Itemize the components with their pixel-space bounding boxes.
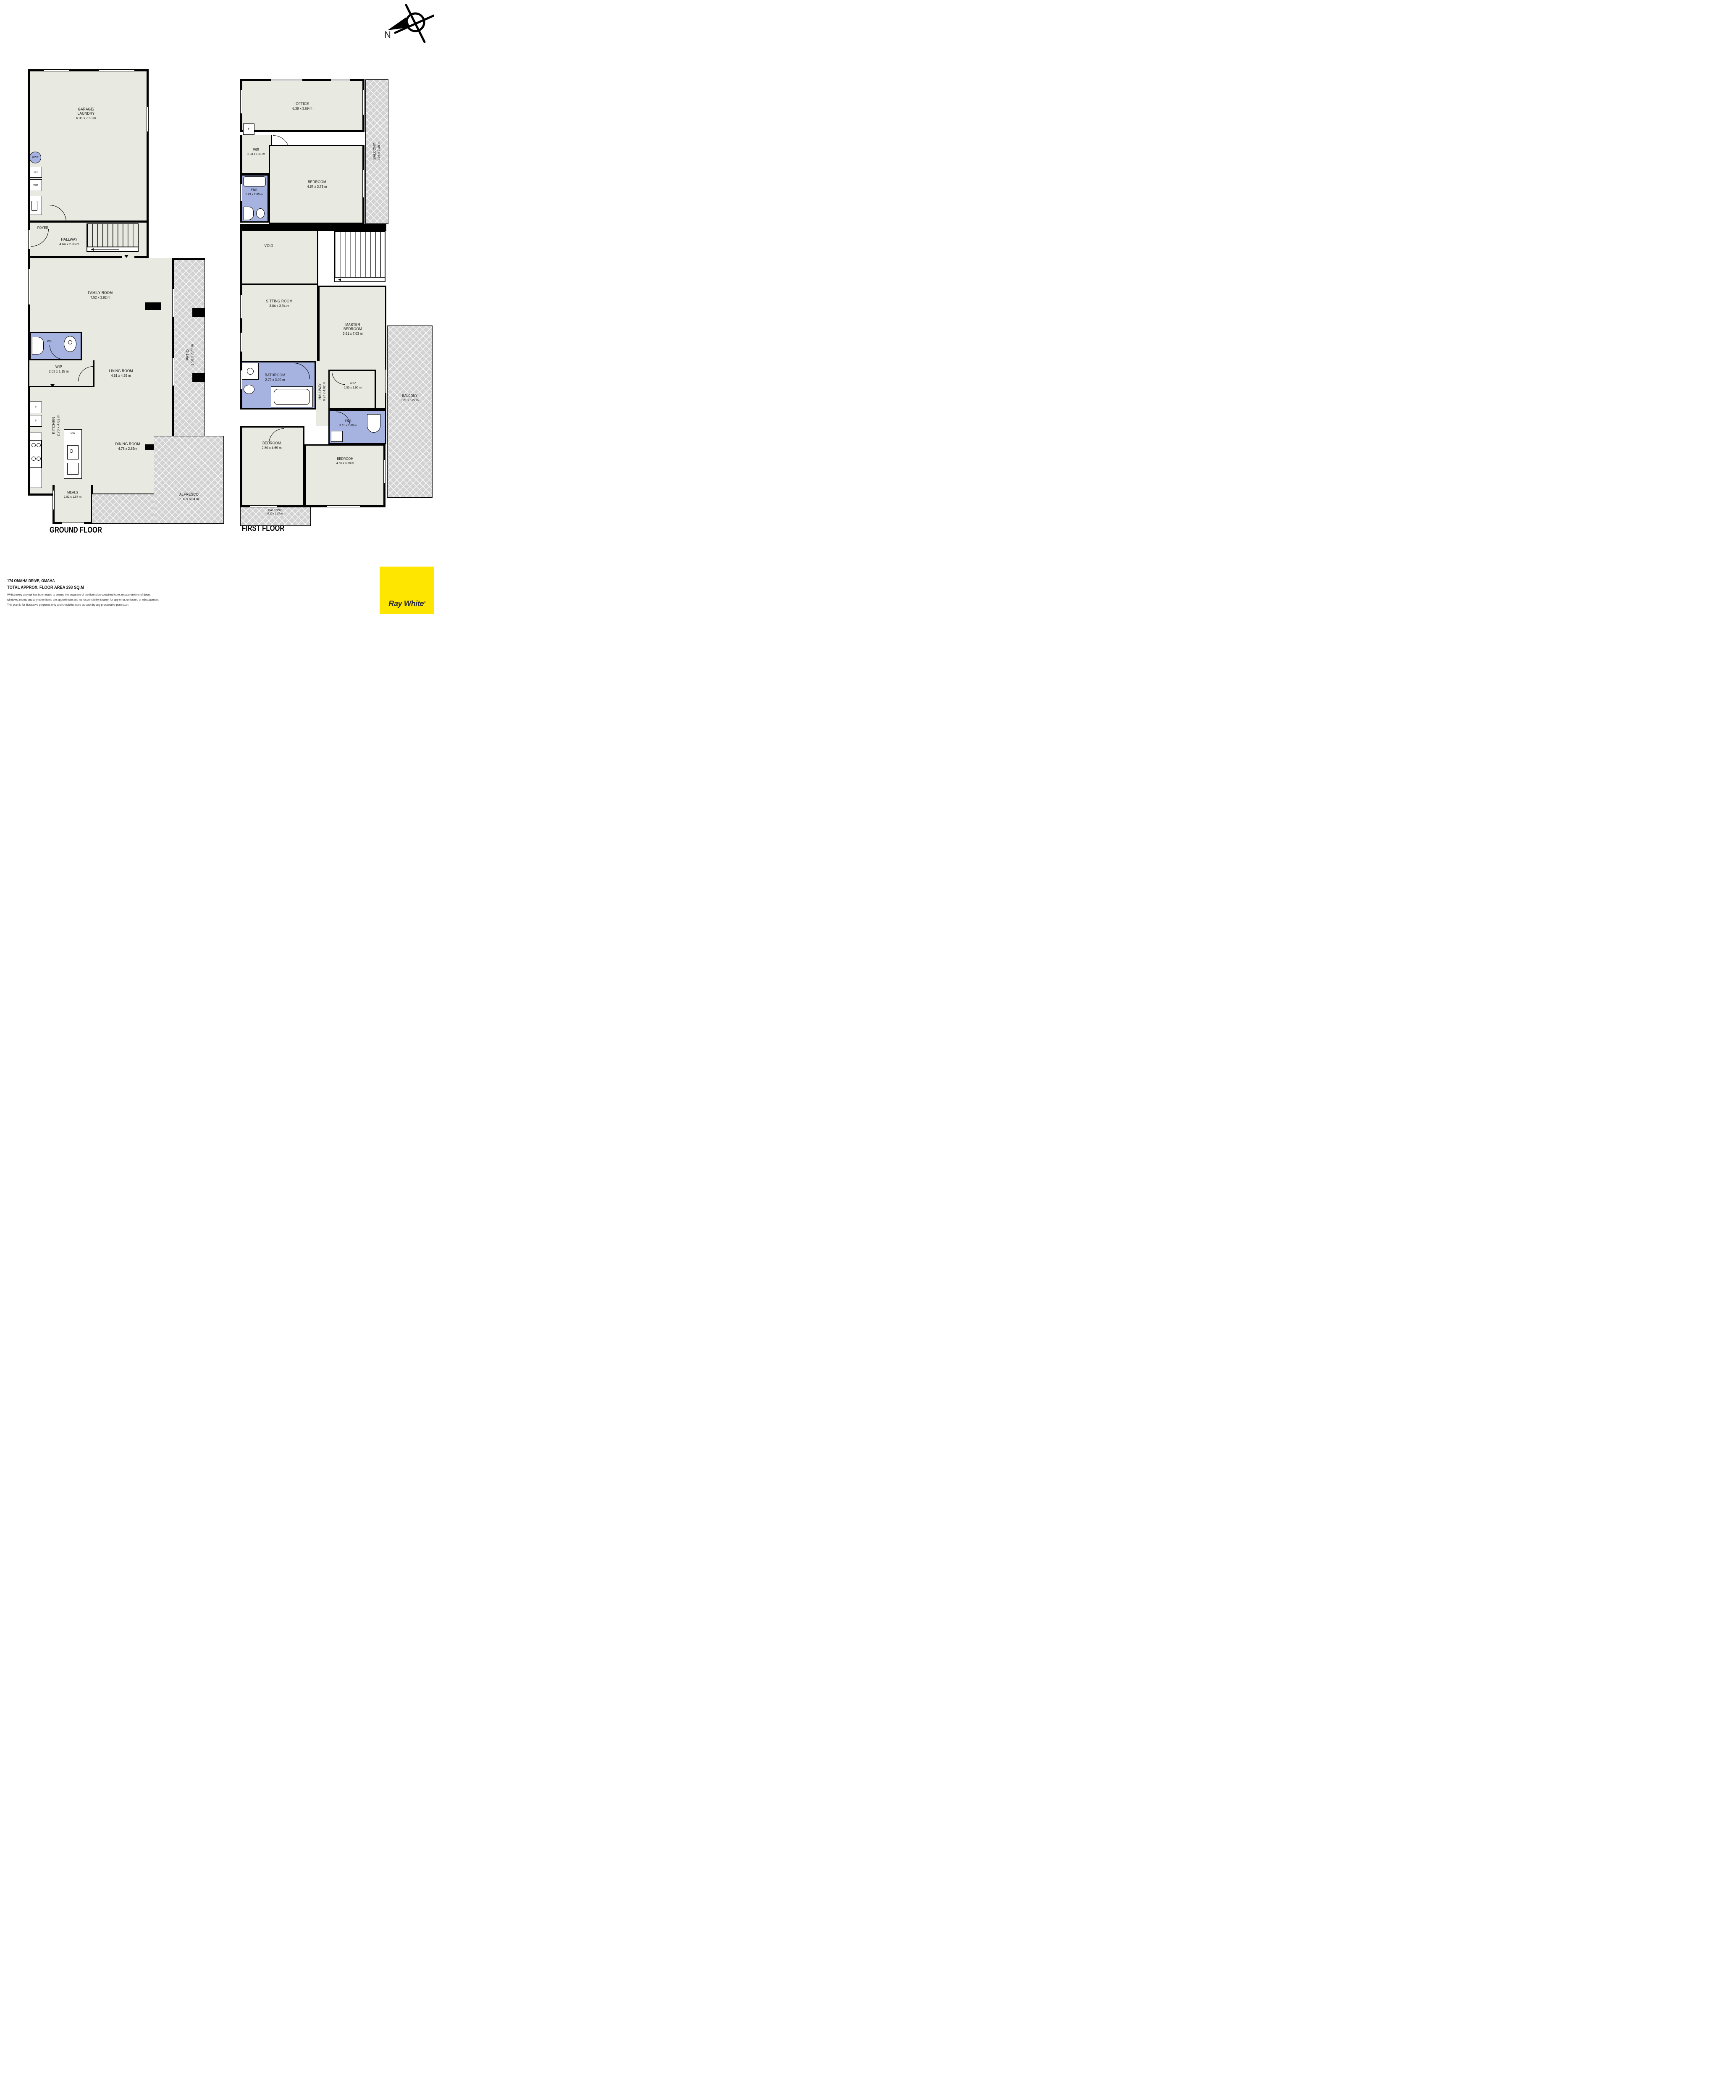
wall [240, 224, 386, 231]
room-name: WIR [333, 381, 372, 385]
room-label-alfresco: ALFRESCO 7.02 x 6.04 m [164, 492, 214, 501]
window [362, 170, 365, 197]
room-label-foyer: FOYER [31, 226, 54, 230]
room-label-garage: GARAGE/ LAUNDRY 6.05 x 7.50 m [59, 107, 113, 120]
room-dims: 4.65 x 3.68 m [320, 461, 370, 465]
window [44, 69, 69, 71]
washing-machine: WM [29, 179, 42, 191]
room-dims: 5.20 x 1.37 m [250, 512, 300, 515]
room-name: BEDROOM [292, 180, 342, 184]
room-label-office: OFFICE 6.38 x 3.69 m [277, 102, 328, 110]
basin [256, 208, 265, 218]
ray-white-logo: Ray White® [380, 567, 434, 614]
island-cabinet [67, 463, 79, 475]
toilet [244, 207, 254, 220]
room-name: SITTING ROOM [254, 299, 304, 303]
alfresco [154, 436, 224, 524]
compass: N [384, 3, 434, 50]
stairs-first [334, 231, 385, 282]
room-name: MEALS [55, 491, 90, 494]
room-name: HALLWAY [46, 237, 92, 241]
room-dims: 4.64 x 2.36 m [46, 242, 92, 246]
room-label-ens-lower: ENS 3.61 x 1.60 m [331, 419, 365, 427]
room-dims: 1.53 x 1.90 m [333, 386, 372, 389]
stairs-ground [87, 223, 139, 252]
room-label-wc: WC [41, 339, 58, 343]
room-void [240, 231, 318, 283]
ground-floor-caption: GROUND FLOOR [50, 526, 102, 535]
room-label-bedroom-upper: BEDROOM 4.87 x 3.73 m [292, 180, 342, 189]
compass-icon [384, 3, 434, 50]
room-label-wip: WIP 2.63 x 1.15 m [36, 365, 82, 373]
wall-stub [145, 302, 161, 310]
room-name: BALCONY [250, 509, 300, 512]
stair-direction-arrow [338, 278, 341, 281]
footer: 174 OMAHA DRIVE, OMAHA TOTAL APPROX. FLO… [7, 579, 164, 608]
balcony-right [387, 325, 433, 498]
opening-marker [124, 255, 128, 258]
room-name: BALCONY [373, 142, 377, 160]
opening-marker [50, 384, 55, 387]
room-name: MASTER [328, 323, 378, 327]
shower [331, 431, 343, 442]
room-name: HALLWAY [318, 382, 322, 401]
sink-drain [70, 449, 73, 453]
window [62, 522, 84, 524]
room-label-balcony-east: BALCONY 1.06 x 7.48 m [373, 142, 381, 160]
room-name: FAMILY ROOM [75, 291, 126, 295]
room-label-wir-lower: WIR 1.53 x 1.90 m [333, 381, 372, 389]
hot-water-tank: H.W.T [29, 152, 41, 163]
room-label-hallway-ground: HALLWAY 4.64 x 2.36 m [46, 237, 92, 246]
alfresco-extension [92, 494, 154, 524]
disclaimer-line: This plan is for illustrative purposes o… [7, 603, 159, 608]
room-dims: 4.78 x 2.83m [102, 446, 153, 451]
room-label-sitting: SITTING ROOM 3.84 x 3.94 m [254, 299, 304, 308]
window [240, 295, 242, 318]
fridge: F [29, 415, 42, 427]
room-dims: 7.52 x 3.82 m [75, 295, 126, 299]
room-garage-laundry [28, 69, 149, 223]
room-dims: 1.06 x 7.48 m [377, 142, 381, 160]
room-label-family: FAMILY ROOM 7.52 x 3.82 m [75, 291, 126, 299]
window [99, 69, 134, 71]
window [28, 230, 30, 249]
room-dims: 4.87 x 3.73 m [292, 184, 342, 189]
room-name: PATIO [186, 344, 190, 366]
room-sitting [240, 283, 318, 361]
room-name: LAUNDRY [59, 111, 113, 115]
room-label-patio: PATIO 1.56 x 7.77 m [186, 344, 194, 366]
room-label-bedroom-bottom-right: BEDROOM 4.65 x 3.68 m [320, 457, 370, 465]
room-name: FOYER [31, 226, 54, 230]
room-name: WIR [241, 148, 272, 152]
room-name: ENS [241, 188, 267, 192]
room-name: LIVING ROOM [96, 369, 146, 373]
room-label-living: LIVING ROOM 4.81 x 4.39 m [96, 369, 146, 378]
room-dims: 6.38 x 3.69 m [277, 106, 328, 110]
brand-name: Ray White [388, 599, 424, 608]
room-label-bedroom-bottom-left: BEDROOM 2.80 x 4.69 m [247, 441, 297, 450]
window [331, 79, 350, 81]
stair-landing [334, 277, 385, 282]
window [52, 491, 55, 509]
room-label-balcony-right: BALCONY 1.81 x 8.22 m [389, 394, 430, 402]
stair-arrow-line [94, 249, 119, 250]
kitchen-sink [67, 445, 79, 459]
room-dims: 2.80 x 4.69 m [247, 446, 297, 450]
window [28, 269, 30, 304]
property-address: 174 OMAHA DRIVE, OMAHA [7, 579, 141, 583]
disclaimer-line: Whilst every attempt has been made to en… [7, 593, 159, 598]
patio-pillar [192, 373, 205, 382]
total-floor-area: TOTAL APPROX. FLOOR AREA 293 SQ.M [7, 585, 141, 590]
stair-landing [87, 247, 139, 252]
registered-mark: ® [424, 601, 425, 604]
room-name: DINING ROOM [102, 442, 153, 446]
room-label-hallway-first: HALLWAY 0.97 x 4.02 m [318, 382, 326, 401]
window [240, 90, 242, 113]
room-label-wir-upper: WIR 2.04 x 1.81 m [241, 148, 272, 156]
room-dims: 1.56 x 7.77 m [190, 344, 194, 366]
room-name: WC [41, 339, 58, 343]
room-name: BALCONY [389, 394, 430, 398]
disclaimer-line: windows, rooms and any other items are a… [7, 598, 159, 603]
room-dims: 4.81 x 4.39 m [96, 373, 146, 378]
room-dims: 7.02 x 6.04 m [164, 497, 214, 501]
room-dims: 1.81 x 8.22 m [389, 398, 430, 402]
room-dims: 3.84 x 3.94 m [254, 304, 304, 308]
room-label-ens-upper: ENS 1.43 x 2.85 m [241, 188, 267, 196]
room-label-balcony-south: BALCONY 5.20 x 1.37 m [250, 509, 300, 515]
room-label-void: VOID [253, 244, 284, 248]
room-name: WIP [36, 365, 82, 369]
room-bedroom-bottom-right [304, 444, 385, 507]
room-dims: 3.61 x 7.03 m [328, 331, 378, 336]
room-label-dining: DINING ROOM 4.78 x 2.83m [102, 442, 153, 451]
first-floor-caption: FIRST FLOOR [242, 524, 284, 533]
room-label-meals: MEALS 1.82 x 1.57 m [55, 491, 90, 499]
room-dims: 1.82 x 1.57 m [55, 495, 90, 499]
stair-direction-arrow [91, 248, 94, 251]
window [383, 460, 385, 483]
room-name: KITCHEN [52, 415, 56, 436]
room-label-master: MASTER BEDROOM 3.61 x 7.03 m [328, 323, 378, 336]
window [271, 79, 302, 81]
room-dims: 6.05 x 7.50 m [59, 116, 113, 120]
room-name: ENS [331, 419, 365, 423]
room-dims: 2.79 x 3.00 m [250, 378, 300, 382]
room-dims: 0.97 x 4.02 m [323, 382, 326, 401]
room-name: ALFRESCO [164, 492, 214, 496]
bath [243, 176, 266, 186]
window [240, 333, 242, 352]
room-label-kitchen: KITCHEN 2.73 x 4.82 m [52, 415, 60, 436]
dishwasher: DW [64, 432, 82, 435]
toilet [367, 414, 380, 433]
room-dims: 2.63 x 1.15 m [36, 369, 82, 373]
room-name: BEDROOM [320, 457, 370, 461]
patio-pillar [192, 308, 205, 317]
room-dims: 2.73 x 4.82 m [56, 415, 60, 436]
ray-white-brand-text: Ray White® [380, 599, 434, 608]
cooktop [30, 440, 42, 468]
dryer: DR [29, 167, 42, 178]
window [362, 90, 365, 115]
room-label-bathroom: BATHROOM 2.79 x 3.00 m [250, 373, 300, 382]
room-dims: 3.61 x 1.60 m [331, 423, 365, 427]
stair-arrow-line [341, 280, 366, 280]
cupboard: F [243, 123, 254, 135]
room-dims: 1.43 x 2.85 m [241, 192, 267, 196]
room-name: VOID [253, 244, 284, 248]
basin [244, 385, 254, 394]
room-dims: 2.04 x 1.81 m [241, 152, 272, 156]
room-name: BEDROOM [247, 441, 297, 445]
floor-plan-page: N GARAGE/ LAUNDRY 6.05 x 7.50 m H.W.T DR… [0, 0, 434, 614]
laundry-tub-basin [31, 201, 37, 211]
compass-north-label: N [384, 29, 391, 40]
fridge: F [29, 402, 42, 413]
room-name: OFFICE [277, 102, 328, 106]
window [327, 505, 360, 507]
basin-drain [68, 340, 72, 344]
bath [274, 389, 310, 405]
window [147, 107, 149, 131]
room-name: BATHROOM [250, 373, 300, 377]
room-name: BEDROOM [328, 327, 378, 331]
room-name: GARAGE/ [59, 107, 113, 111]
